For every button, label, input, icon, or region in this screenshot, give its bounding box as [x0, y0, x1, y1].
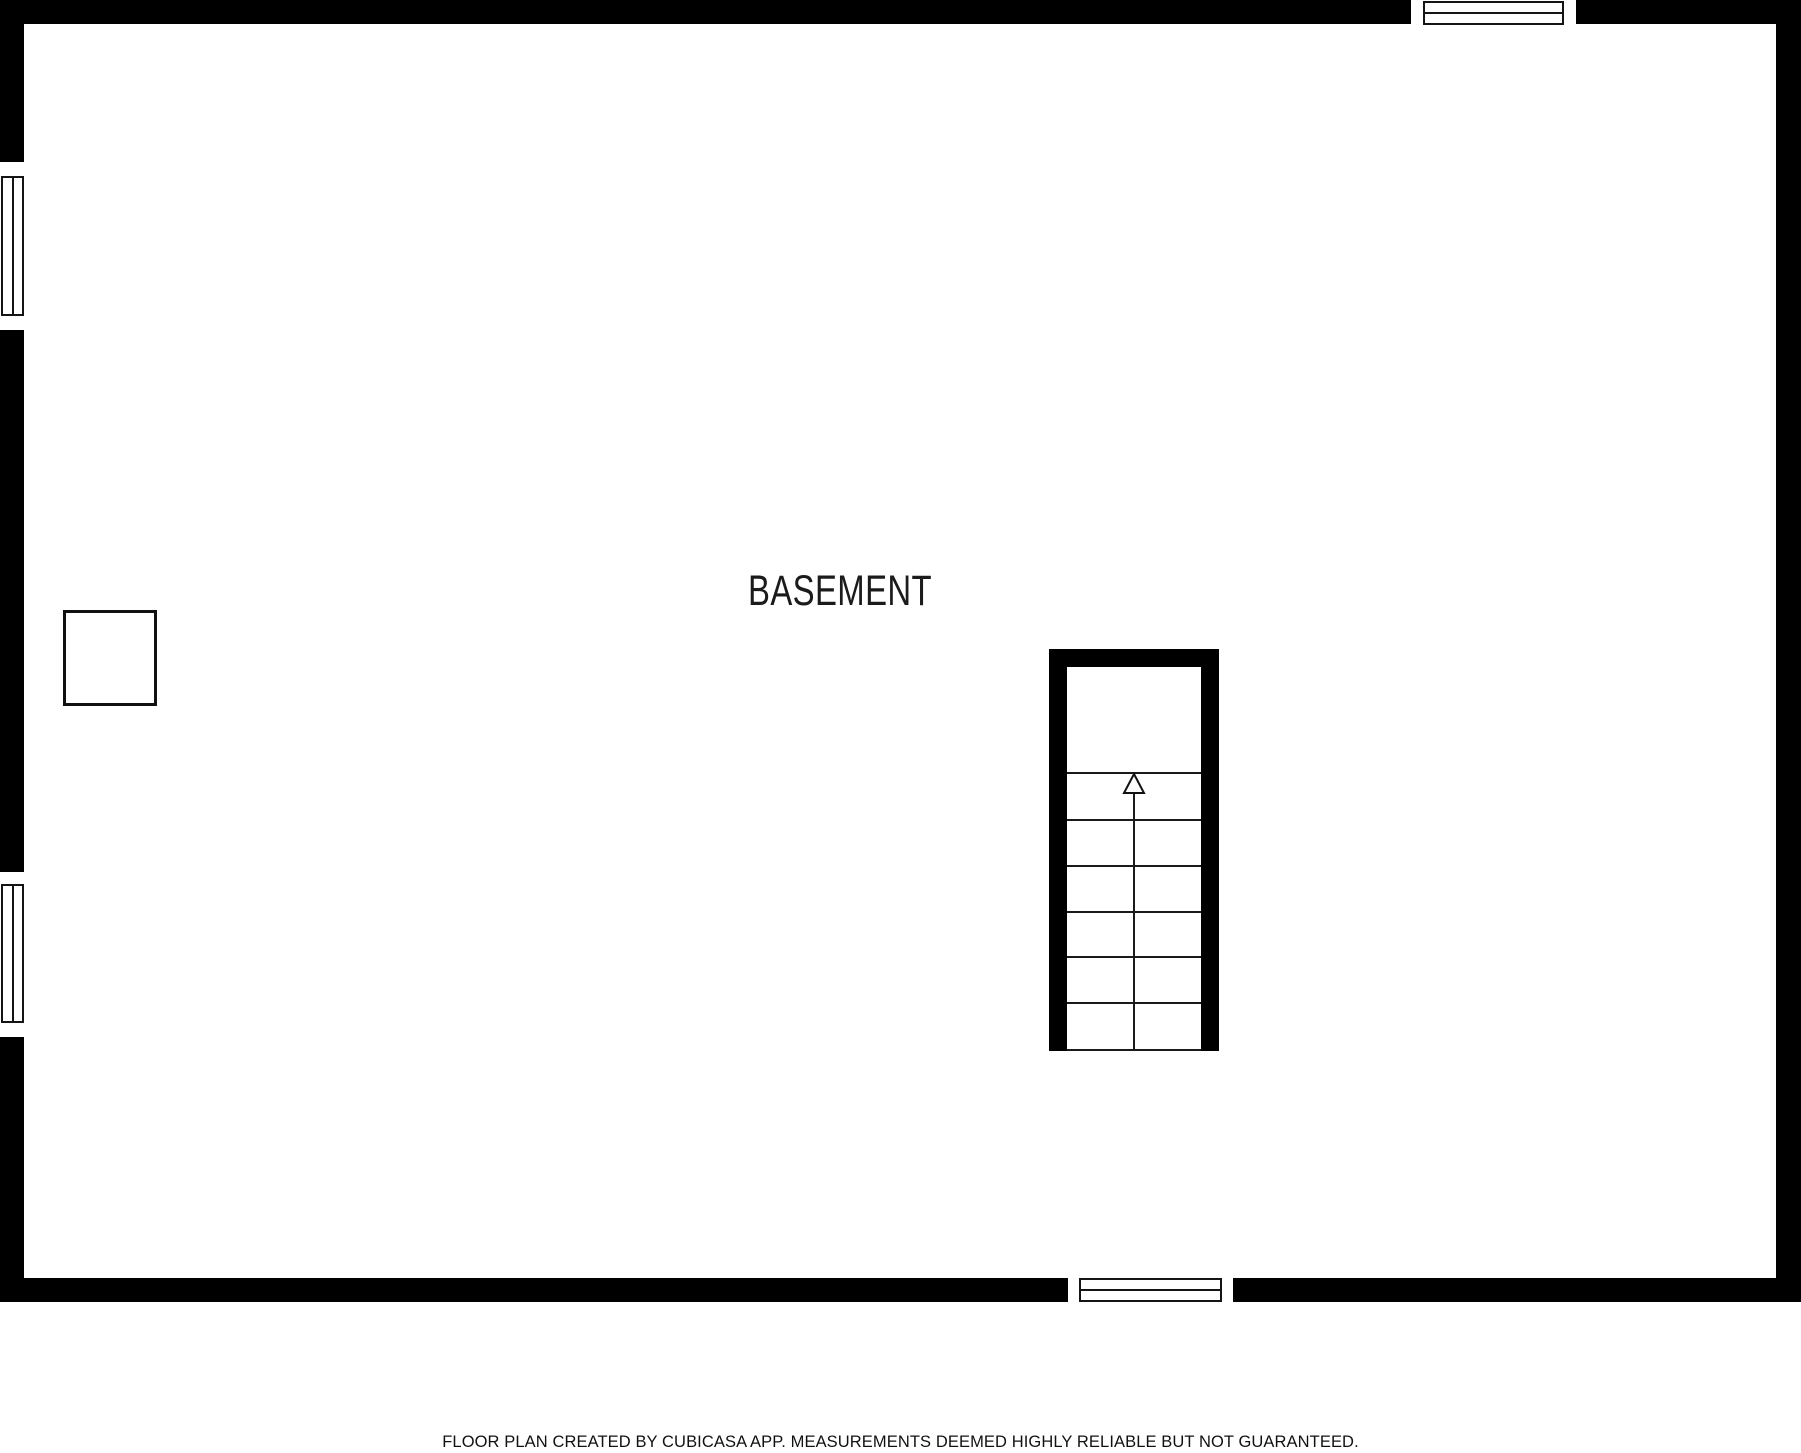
window-left-wall-lower [1, 884, 24, 1023]
window-bottom-wall [1079, 1278, 1222, 1302]
stair-direction-line [1133, 776, 1135, 1051]
window-pane-line [12, 178, 14, 314]
stair-up-arrow-icon [1122, 773, 1146, 795]
window-pane-line [1425, 12, 1562, 14]
stair-wall-left [1049, 649, 1067, 1051]
wall-bottom-right-segment [1233, 1278, 1801, 1302]
wall-left-middle-segment [0, 330, 24, 872]
footer-note: FLOOR PLAN CREATED BY CUBICASA APP. MEAS… [0, 1433, 1801, 1452]
wall-left-lower-segment [0, 1037, 24, 1302]
stair-wall-right [1201, 649, 1219, 1051]
window-pane-line [1081, 1289, 1220, 1291]
floor-plan-canvas: BASEMENT FLOOR PLAN CREATED BY CUBICASA … [0, 0, 1801, 1453]
support-post [63, 610, 157, 706]
room-label-text: BASEMENT [748, 568, 932, 614]
stair-wall-top [1049, 649, 1219, 667]
wall-top-left-segment [0, 0, 1411, 24]
window-left-wall-upper [1, 176, 24, 316]
wall-top-right-segment [1576, 0, 1801, 24]
wall-left-upper-segment [0, 0, 24, 162]
window-top-wall [1423, 1, 1564, 25]
wall-right [1776, 0, 1801, 1302]
room-label: BASEMENT [748, 568, 929, 614]
wall-bottom-left-segment [0, 1278, 1068, 1302]
window-pane-line [12, 886, 14, 1021]
staircase [1067, 667, 1201, 1051]
